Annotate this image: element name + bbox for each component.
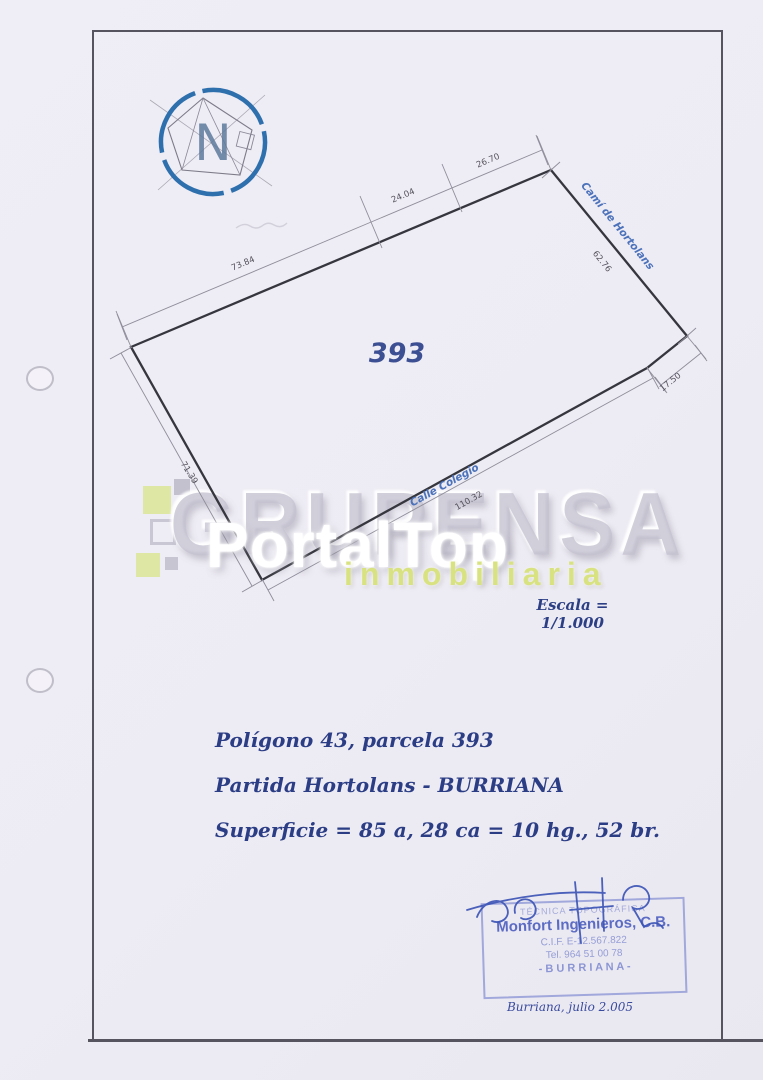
dimension-label-top-mid: 24.04 — [390, 187, 416, 206]
parcel-number-label: 393 — [369, 338, 425, 369]
dimension-label-right-short: 17.50 — [658, 371, 683, 394]
north-label: N — [194, 114, 231, 172]
detail-poligono: Polígono 43, parcela 393 — [215, 728, 494, 752]
detail-superficie: Superficie = 85 a, 28 ca = 10 hg., 52 br… — [215, 818, 660, 842]
street-label-cami-hortolans: Camí de Hortolans — [578, 180, 656, 272]
dimension-label-top-left: 73.84 — [230, 255, 256, 274]
dimension-label-top-right: 26.70 — [475, 152, 501, 171]
dimension-label-right: 62.76 — [590, 249, 613, 274]
north-compass-icon: N — [150, 80, 275, 203]
signature-scribble — [455, 865, 685, 965]
pencil-mark — [236, 223, 287, 228]
scale-label: Escala = 1/1.000 — [505, 596, 640, 632]
watermark-tagline: inmobiliaria — [344, 556, 608, 593]
scanned-plan-page: GRUPENSA N 73.84 24.04 — [0, 0, 763, 1080]
detail-partida: Partida Hortolans - BURRIANA — [215, 773, 564, 797]
date-note: Burriana, julio 2.005 — [490, 1000, 650, 1014]
